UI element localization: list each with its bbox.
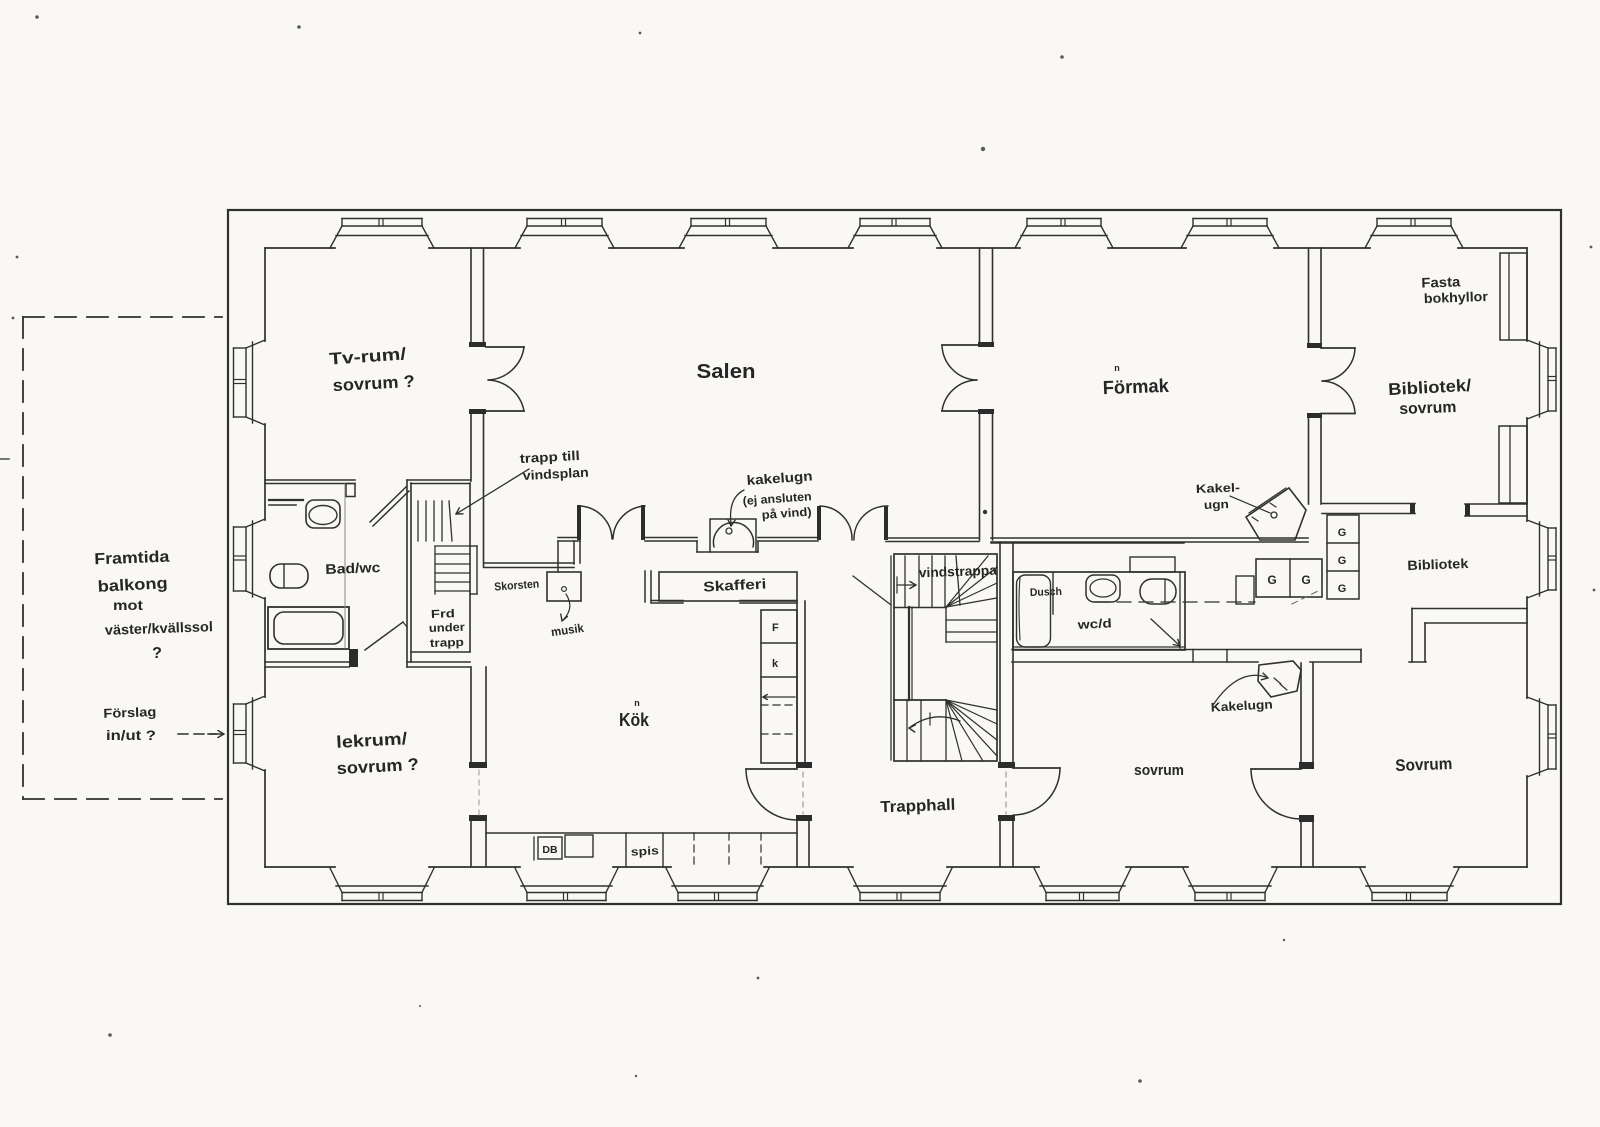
svg-text:k: k xyxy=(772,658,779,670)
svg-text:G: G xyxy=(1301,573,1310,587)
svg-text:Skorsten: Skorsten xyxy=(494,578,540,593)
svg-text:sovrum ?: sovrum ? xyxy=(336,755,419,778)
svg-text:spis: spis xyxy=(631,845,660,858)
svg-text:sovrum: sovrum xyxy=(1134,763,1184,779)
svg-text:Bad/wc: Bad/wc xyxy=(325,559,381,577)
svg-text:väster/kvällssol: väster/kvällssol xyxy=(105,618,213,638)
svg-text:G: G xyxy=(1338,555,1347,567)
svg-text:n: n xyxy=(1114,363,1120,373)
svg-text:Kök: Kök xyxy=(619,710,650,730)
svg-text:n: n xyxy=(634,698,640,708)
svg-text:Kakelugn: Kakelugn xyxy=(1210,697,1273,714)
svg-text:Förslag: Förslag xyxy=(103,704,157,721)
svg-text:Skafferi: Skafferi xyxy=(703,575,767,594)
svg-text:balkong: balkong xyxy=(97,575,168,596)
svg-text:sovrum ?: sovrum ? xyxy=(332,372,415,395)
svg-text:vindstrappa: vindstrappa xyxy=(919,563,998,581)
svg-text:G: G xyxy=(1338,527,1347,539)
svg-text:wc/d: wc/d xyxy=(1076,616,1112,632)
svg-text:F: F xyxy=(772,622,779,634)
svg-text:sovrum: sovrum xyxy=(1399,399,1457,418)
svg-text:trapp till: trapp till xyxy=(519,448,580,466)
svg-text:på vind): på vind) xyxy=(761,505,812,522)
svg-text:in/ut ?: in/ut ? xyxy=(106,727,156,743)
svg-text:Bibliotek/: Bibliotek/ xyxy=(1388,376,1472,399)
svg-text:Trapphall: Trapphall xyxy=(880,797,956,817)
svg-text:Dusch: Dusch xyxy=(1030,586,1063,599)
svg-text:Frd: Frd xyxy=(431,608,455,621)
svg-text:G: G xyxy=(1267,573,1276,587)
svg-text:DB: DB xyxy=(542,844,558,856)
svg-text:Bibliotek: Bibliotek xyxy=(1407,556,1469,573)
svg-text:under: under xyxy=(429,622,466,635)
svg-text:mot: mot xyxy=(113,597,143,613)
svg-text:vindsplan: vindsplan xyxy=(522,465,589,483)
svg-text:Tv-rum/: Tv-rum/ xyxy=(329,344,407,368)
svg-text:Framtida: Framtida xyxy=(94,549,170,569)
svg-text:Sovrum: Sovrum xyxy=(1395,755,1453,775)
svg-text:Salen: Salen xyxy=(697,361,756,383)
svg-text:G: G xyxy=(1338,583,1347,595)
svg-text:?: ? xyxy=(152,645,162,662)
svg-text:bokhyllor: bokhyllor xyxy=(1424,289,1489,306)
svg-text:Fasta: Fasta xyxy=(1421,273,1461,290)
svg-text:ugn: ugn xyxy=(1204,497,1229,512)
svg-text:trapp: trapp xyxy=(430,637,464,650)
svg-text:Kakel-: Kakel- xyxy=(1196,480,1240,496)
svg-text:kakelugn: kakelugn xyxy=(746,468,813,488)
svg-text:Förmak: Förmak xyxy=(1102,376,1169,399)
svg-text:musik: musik xyxy=(550,621,585,639)
svg-text:lekrum/: lekrum/ xyxy=(336,729,408,752)
